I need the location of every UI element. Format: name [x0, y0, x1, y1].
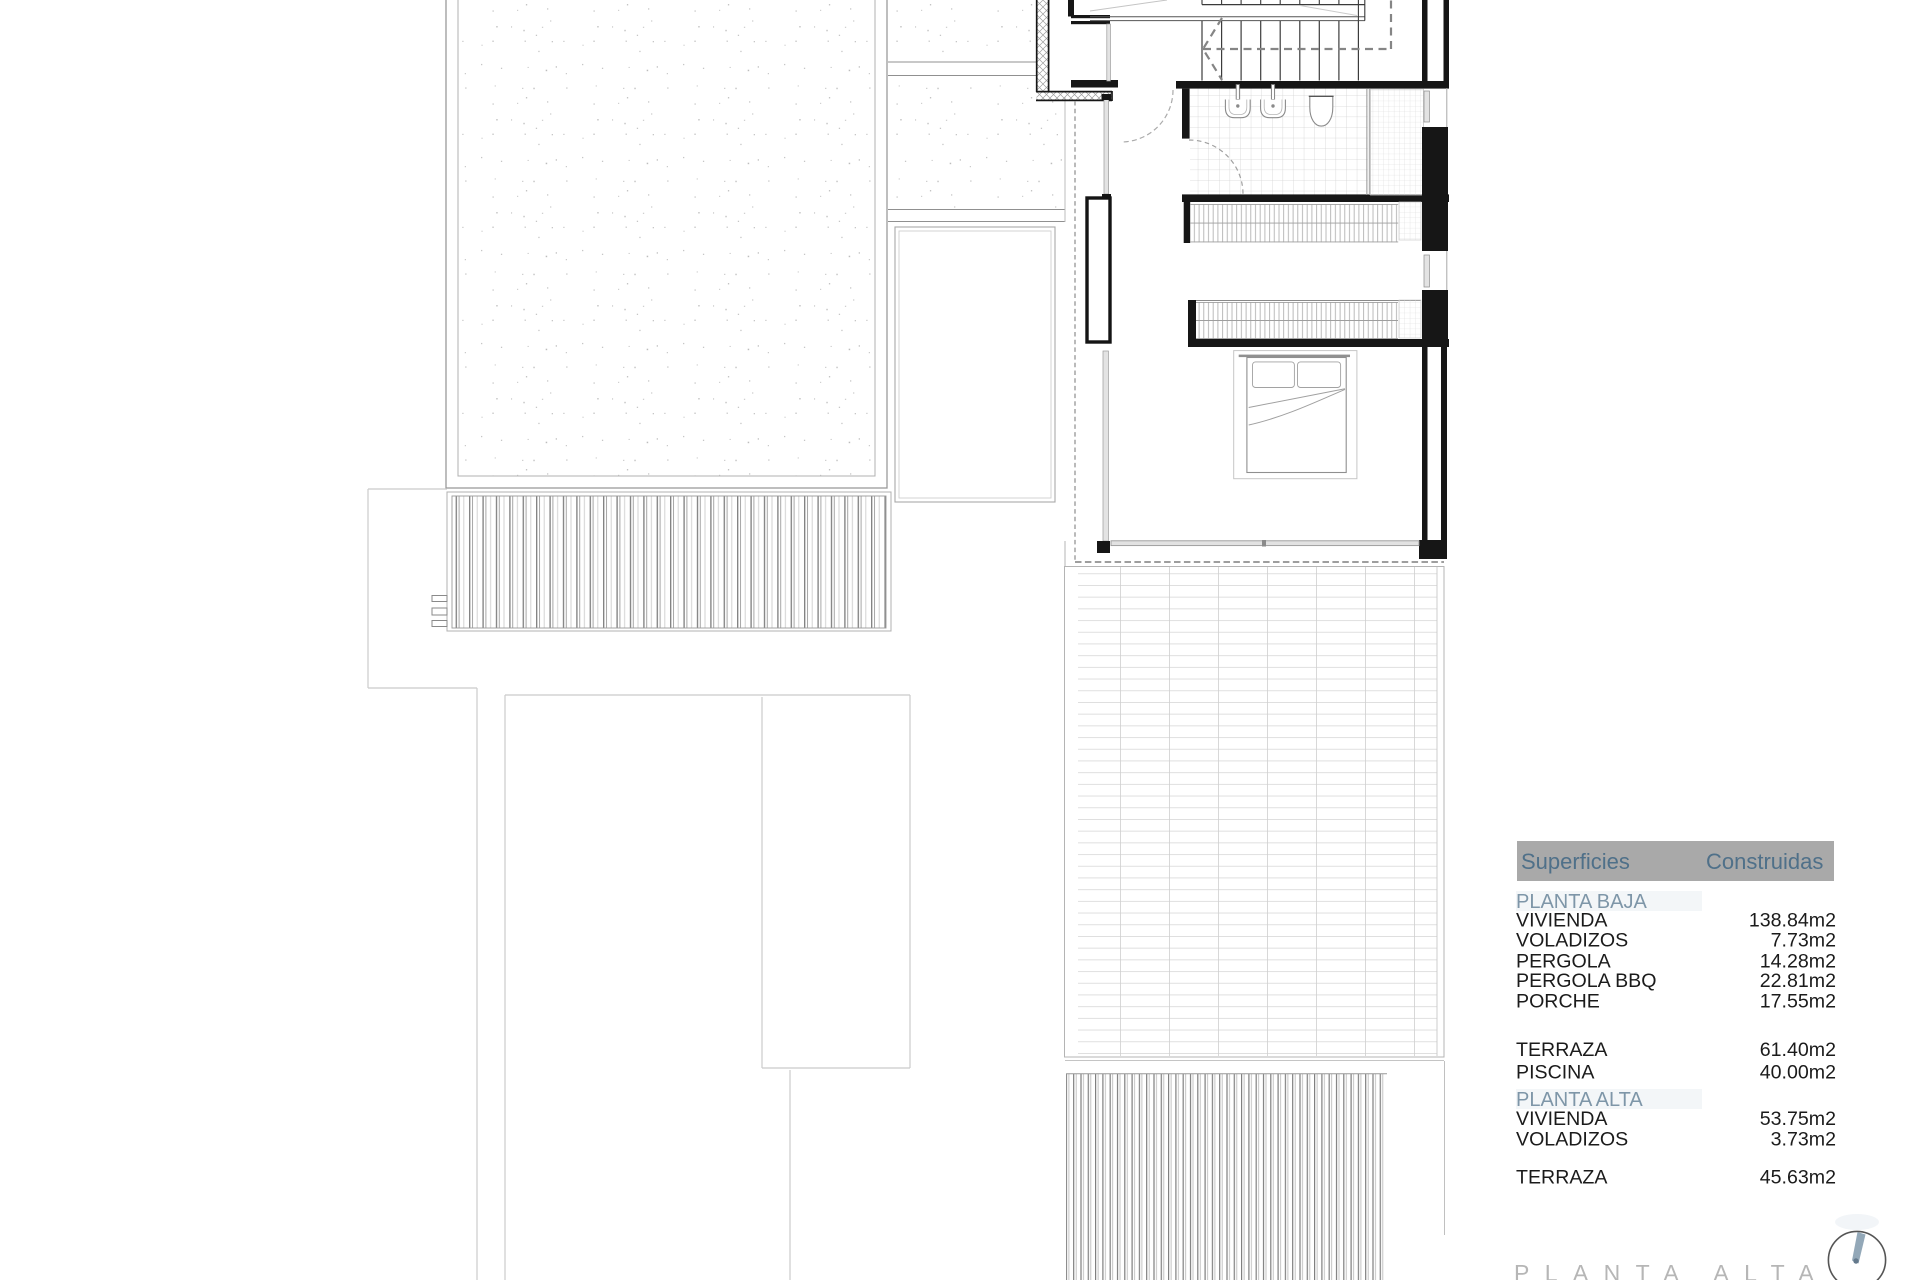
svg-text:PORCHE: PORCHE: [1516, 991, 1600, 1013]
svg-text:17.55m2: 17.55m2: [1760, 991, 1836, 1013]
svg-text:VOLADIZOS: VOLADIZOS: [1516, 1129, 1628, 1151]
svg-text:VIVIENDA: VIVIENDA: [1516, 910, 1608, 932]
svg-text:45.63m2: 45.63m2: [1760, 1167, 1836, 1189]
svg-text:3.73m2: 3.73m2: [1771, 1129, 1836, 1151]
svg-text:TERRAZA: TERRAZA: [1516, 1039, 1608, 1061]
svg-text:PLANTA ALTA: PLANTA ALTA: [1514, 1260, 1829, 1280]
svg-text:TERRAZA: TERRAZA: [1516, 1167, 1608, 1189]
svg-text:VIVIENDA: VIVIENDA: [1516, 1108, 1608, 1130]
svg-text:Superficies: Superficies: [1521, 849, 1630, 874]
svg-text:VOLADIZOS: VOLADIZOS: [1516, 930, 1628, 952]
svg-text:40.00m2: 40.00m2: [1760, 1062, 1836, 1084]
svg-text:PISCINA: PISCINA: [1516, 1062, 1595, 1084]
svg-text:PERGOLA BBQ: PERGOLA BBQ: [1516, 970, 1656, 992]
svg-text:138.84m2: 138.84m2: [1749, 910, 1836, 932]
svg-text:53.75m2: 53.75m2: [1760, 1108, 1836, 1130]
svg-text:22.81m2: 22.81m2: [1760, 970, 1836, 992]
svg-text:Construidas: Construidas: [1706, 849, 1823, 874]
svg-text:61.40m2: 61.40m2: [1760, 1039, 1836, 1061]
svg-text:7.73m2: 7.73m2: [1771, 930, 1836, 952]
